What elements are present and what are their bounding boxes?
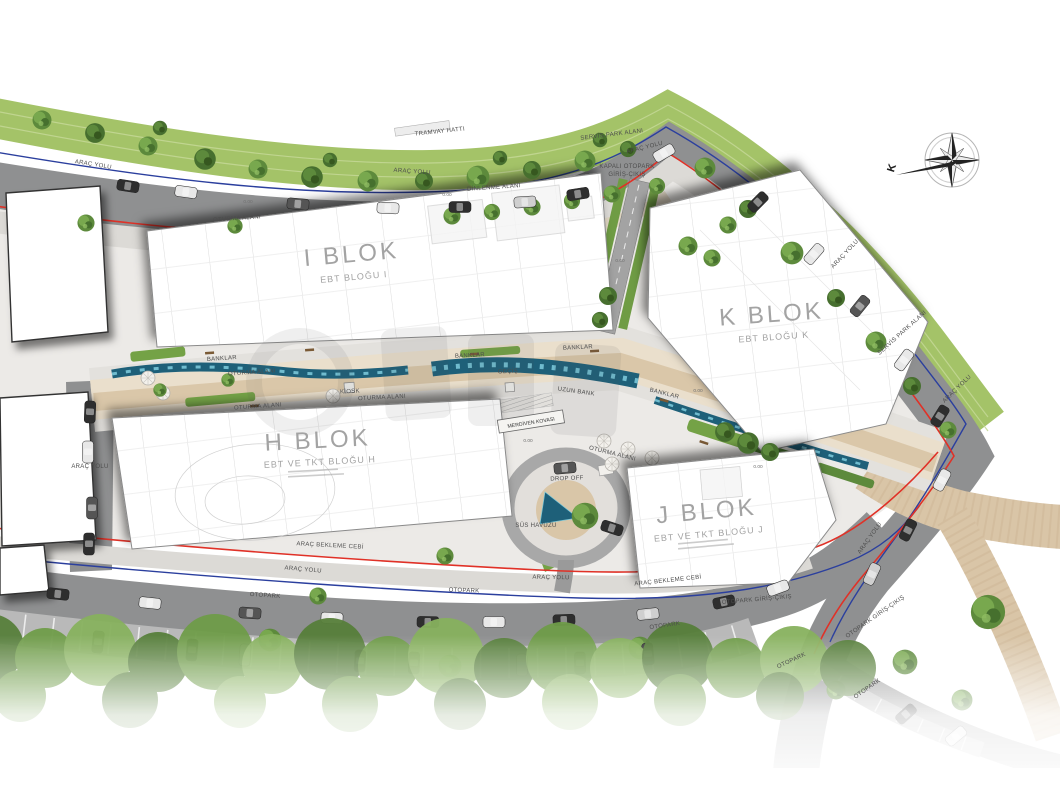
road-label: ARAÇ YOLU bbox=[532, 575, 569, 582]
road-label: ARAÇ YOLU bbox=[71, 464, 108, 470]
garage-entry-label: KAPALI OTOPARK bbox=[599, 164, 654, 170]
block-h-title: H BLOK bbox=[264, 424, 371, 457]
site-plan-drawing: ARAÇ YOLU ARAÇ YOLU ARAÇ YOLU ARAÇ YOLU … bbox=[0, 0, 1060, 795]
elevation-mark: 0.00 bbox=[442, 192, 452, 198]
road-label: ARAÇ YOLU bbox=[74, 159, 112, 171]
neighbour-building bbox=[6, 186, 108, 342]
elevation-mark: 0.00 bbox=[523, 438, 533, 444]
neighbour-building bbox=[0, 545, 49, 595]
parking-label: OTOPARK bbox=[448, 587, 479, 594]
garage-entry-label: GİRİŞ-ÇIKIŞ bbox=[608, 171, 645, 178]
compass-rose: K bbox=[885, 133, 979, 187]
pool-label: SÜS HAVUZU bbox=[515, 522, 556, 529]
passage-label: GEÇİŞ bbox=[498, 367, 519, 375]
kiosk-label: KİOSK bbox=[340, 387, 360, 395]
elevation-mark: 0.00 bbox=[615, 258, 625, 264]
elevation-mark: 0.00 bbox=[243, 199, 253, 205]
north-label: K bbox=[885, 162, 899, 173]
drop-off-label: DROP OFF bbox=[550, 475, 584, 482]
elevation-mark: 0.00 bbox=[693, 388, 703, 394]
site-plan-canvas: ARAÇ YOLU ARAÇ YOLU ARAÇ YOLU ARAÇ YOLU … bbox=[0, 0, 1060, 795]
elevation-mark: 0.00 bbox=[753, 464, 763, 470]
